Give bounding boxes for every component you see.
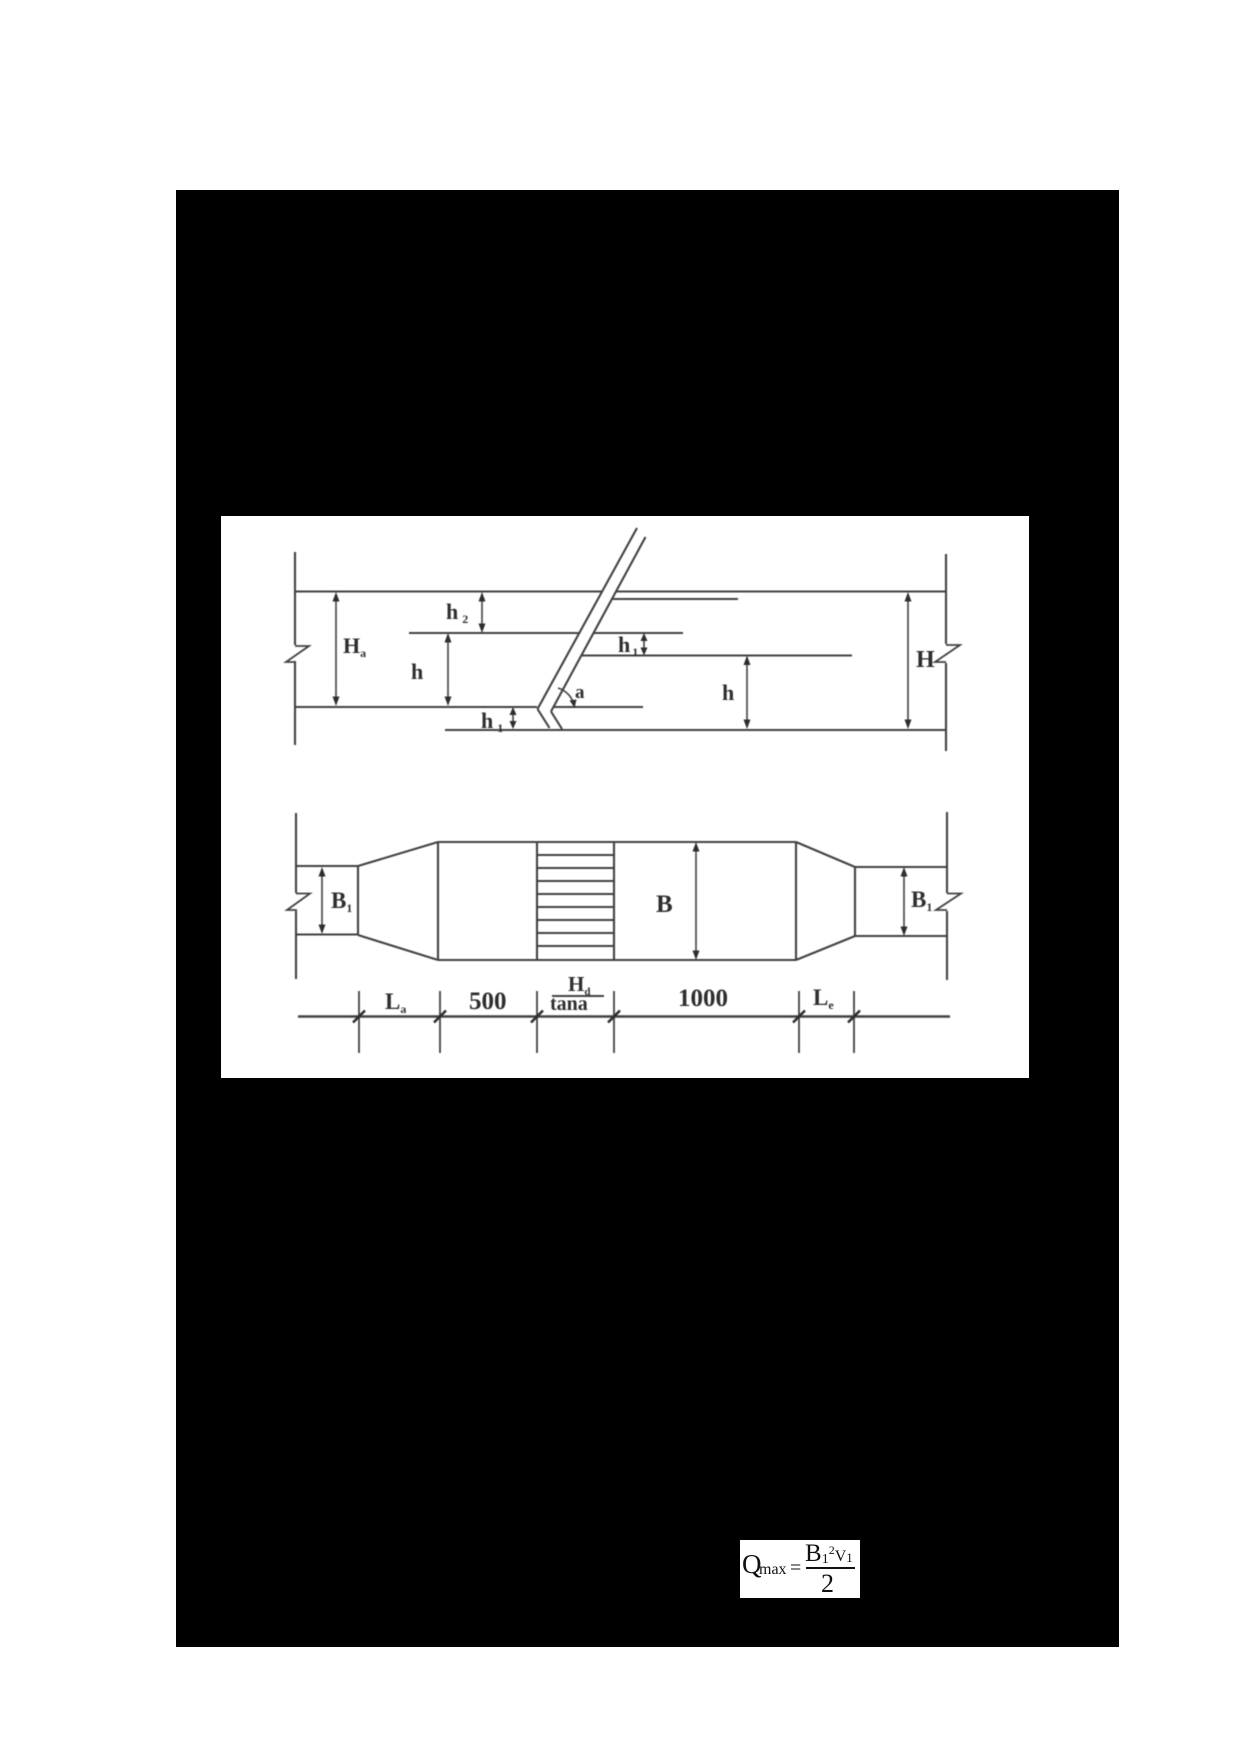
svg-text:B: B [656, 891, 673, 918]
svg-text:1000: 1000 [678, 985, 728, 1012]
svg-text:h: h [722, 680, 734, 705]
svg-text:Ha: Ha [343, 633, 366, 660]
svg-text:h1: h1 [481, 708, 503, 735]
svg-text:a: a [575, 682, 585, 703]
svg-text:B1: B1 [911, 887, 932, 914]
svg-text:B1: B1 [331, 888, 352, 915]
svg-text:tana: tana [550, 993, 588, 1015]
svg-text:h1: h1 [618, 632, 638, 659]
svg-text:La: La [385, 989, 406, 1016]
svg-text:Le: Le [813, 985, 834, 1012]
svg-text:H: H [916, 647, 935, 673]
svg-text:500: 500 [469, 988, 507, 1015]
svg-text:h2: h2 [446, 599, 468, 626]
svg-text:h: h [411, 659, 423, 684]
